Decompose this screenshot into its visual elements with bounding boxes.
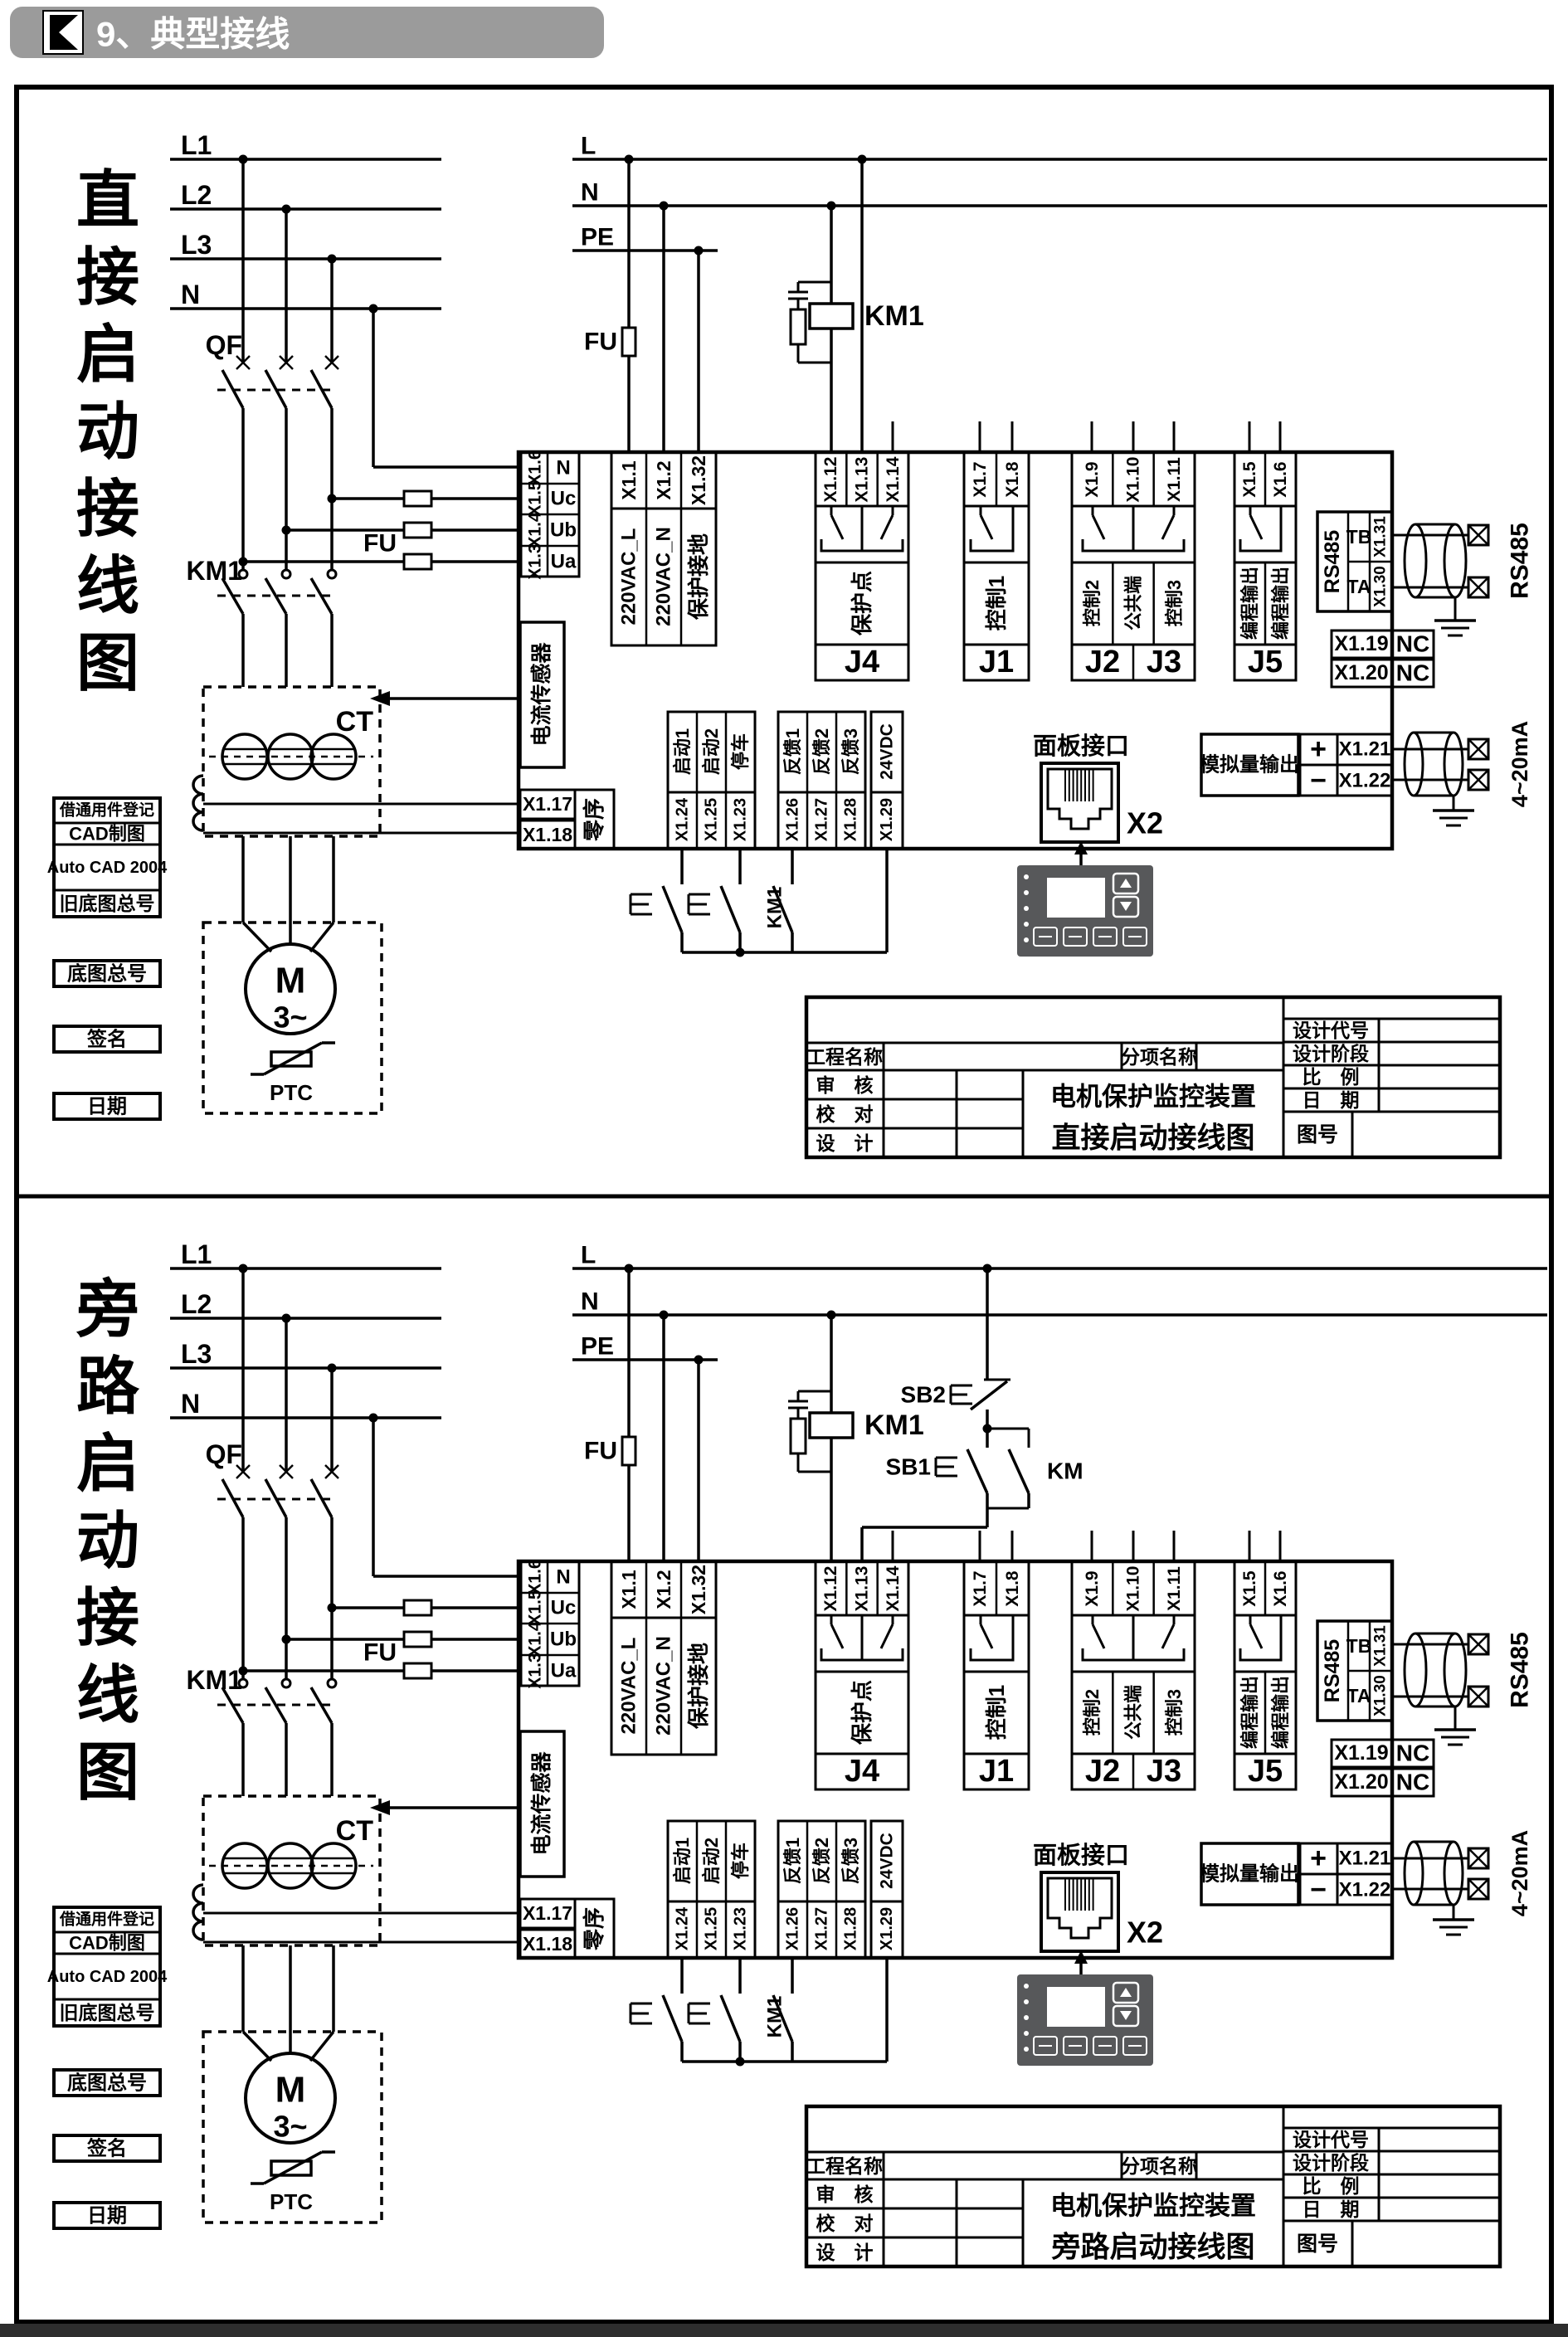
zero-seq-coil-icon	[193, 776, 203, 830]
breaker-label: QF	[206, 1439, 242, 1469]
relay-contact-icon	[971, 1629, 1013, 1660]
cable-shield	[1444, 1842, 1463, 1905]
text-label: NC	[1396, 1770, 1429, 1795]
box	[1234, 506, 1296, 562]
breaker-label: QF	[206, 330, 242, 360]
text-label: 图号	[1297, 2232, 1338, 2256]
motor-phase-label: 3~	[273, 2110, 307, 2144]
side-title-char: 线	[76, 552, 139, 622]
terminal-desc: Ua	[551, 1660, 577, 1682]
header-bar: 9、典型接线	[10, 7, 604, 58]
text-label: 日 期	[1303, 2198, 1360, 2220]
text-label: 签名	[86, 2137, 127, 2160]
keypad-led	[1024, 1999, 1029, 2004]
connector-name: X2	[1127, 806, 1163, 840]
connector-name: J5	[1248, 1754, 1283, 1789]
sensor-label: 电流传感器	[529, 1751, 553, 1856]
relay-contact-icon	[1133, 1629, 1184, 1660]
terminal-id: X1.21	[1339, 1848, 1391, 1870]
box	[964, 506, 1029, 562]
terminal-id: X1.17	[523, 1902, 572, 1924]
panel-port-label: 面板接口	[1033, 733, 1129, 760]
terminal-id: X1.3	[526, 543, 545, 579]
text-label: 日 期	[1303, 1089, 1360, 1111]
terminal-desc: 反馈2	[811, 1838, 832, 1884]
fuse-label: FU	[363, 530, 397, 557]
direct-start-diagram: 直接启动接线图L1L2L3NQFFUKM1CTM3~PTCLNPEFUKM1X1…	[47, 130, 1547, 1157]
text-label: 设计代号	[1293, 2129, 1369, 2150]
terminal-desc: 反馈1	[782, 1838, 803, 1884]
terminal-id: X1.26	[784, 1907, 802, 1950]
terminal-desc: Ub	[550, 519, 577, 542]
analog-ext-label: 4~20mA	[1507, 1830, 1532, 1916]
terminal-id: X1.21	[1339, 738, 1391, 761]
terminal-id: X1.28	[842, 1907, 860, 1950]
rj45-jack-icon	[1041, 763, 1118, 842]
terminal-desc: 保护点	[850, 1680, 874, 1745]
connector-name: J5	[1248, 645, 1283, 679]
fuse-icon	[622, 328, 635, 356]
device-title: 电机保护监控装置	[1050, 1083, 1256, 1112]
wire	[243, 2032, 271, 2061]
side-title-char: 动	[76, 397, 139, 468]
contactor-coil-icon	[810, 304, 853, 329]
terminal-desc: 24VDC	[878, 723, 897, 780]
terminal-id: X1.11	[1165, 1566, 1184, 1611]
terminal-id: X1.2	[653, 460, 674, 499]
text-label: 设计阶段	[1293, 2152, 1369, 2174]
relay-contact-icon	[971, 519, 1013, 551]
ptc-label: PTC	[270, 1080, 313, 1105]
rj45-inner	[1048, 769, 1112, 829]
terminal-desc: 控制1	[984, 576, 1009, 631]
terminal-id: X1.30	[1372, 566, 1390, 607]
wire	[1093, 515, 1104, 539]
zero-seq-coil-icon	[193, 1885, 203, 1940]
side-title-char: 直	[76, 166, 139, 236]
terminal-desc: 控制1	[984, 1685, 1009, 1740]
terminal-desc: 编程输出	[1239, 1676, 1260, 1749]
terminal-id: X1.31	[1372, 1625, 1390, 1667]
terminal-id: X1.4	[526, 512, 545, 548]
side-title-char: 图	[76, 629, 139, 699]
line-label: L	[581, 133, 596, 160]
terminal-desc: 停车	[730, 733, 751, 770]
analog-ext-label: 4~20mA	[1507, 721, 1532, 807]
terminal-desc: 控制2	[1082, 1689, 1103, 1736]
text-label: Auto CAD 2004	[47, 1968, 168, 1986]
terminal-id: X1.29	[878, 1907, 896, 1950]
cable-shield	[1405, 1842, 1423, 1905]
fuse-icon	[404, 491, 431, 506]
wire	[1009, 1449, 1029, 1493]
km-aux-label: KM1	[764, 887, 786, 929]
wire	[831, 1624, 843, 1648]
fuse-label: FU	[363, 1639, 397, 1667]
terminal-desc: Ua	[551, 551, 577, 573]
keypad-led	[1024, 906, 1029, 911]
fuse-icon	[404, 523, 431, 538]
wiring-diagram-canvas: 9、典型接线 直接启动接线图L1L2L3NQFFUKM1CTM3~PTCLNPE…	[0, 0, 1568, 2337]
connector-name: J2	[1085, 645, 1120, 679]
terminal-desc: 反馈1	[782, 728, 803, 775]
terminal-id: X1.26	[784, 798, 802, 841]
text-label: 旧底图总号	[60, 893, 155, 914]
rs485-ext-label: RS485	[1507, 1632, 1534, 1708]
text-label: NC	[1396, 660, 1429, 686]
footer-strip	[0, 2324, 1568, 2337]
terminal-id: X1.1	[618, 460, 640, 500]
side-title-char: 接	[76, 243, 139, 314]
terminal-id: X1.13	[853, 457, 872, 503]
panel-port-label: 面板接口	[1033, 1842, 1129, 1869]
terminal-id: X1.12	[821, 1566, 840, 1612]
terminal-id: X1.25	[703, 1907, 721, 1950]
text-label: 比 例	[1303, 2175, 1360, 2197]
text-label: Auto CAD 2004	[47, 859, 168, 877]
junction-dot	[736, 2057, 745, 2067]
cable-shield	[1405, 733, 1423, 796]
coil-label: KM1	[864, 1410, 924, 1441]
wire	[881, 1624, 893, 1648]
terminal-id: X1.28	[842, 798, 860, 841]
wire	[981, 515, 992, 539]
rs485-label: RS485	[1321, 530, 1344, 594]
text-label: 设 计	[816, 2242, 874, 2263]
text-label: 校 对	[816, 1103, 874, 1125]
stop-button-label: SB2	[901, 1382, 946, 1408]
keypad-led	[1024, 874, 1029, 879]
terminal-desc: 启动1	[672, 728, 693, 775]
terminal-desc: 启动1	[672, 1838, 693, 1884]
text-label: 日期	[87, 2205, 127, 2227]
text-label: 审 核	[816, 1074, 874, 1096]
terminal-desc: 反馈3	[840, 1838, 861, 1884]
cable-shield	[1444, 733, 1463, 796]
side-title-char: 接	[76, 1584, 139, 1654]
side-title-char: 动	[76, 1507, 139, 1577]
terminal-desc: 保护点	[850, 571, 874, 636]
fuse-label: FU	[584, 1438, 617, 1465]
terminal-desc: 24VDC	[878, 1833, 897, 1889]
resistor-icon	[791, 1419, 806, 1453]
terminal-id: X1.10	[1124, 457, 1143, 503]
wire	[1093, 1624, 1104, 1648]
terminal-desc: 公共端	[1123, 1685, 1144, 1740]
text-label: NC	[1396, 1741, 1429, 1766]
keypad-led	[1024, 2015, 1029, 2020]
text-label: 底图总号	[67, 2072, 147, 2095]
line-label: N	[581, 1288, 599, 1316]
coil-label: KM1	[864, 300, 924, 332]
km-aux-label: KM	[1047, 1458, 1083, 1484]
box	[1234, 1615, 1296, 1672]
text-label: 旧底图总号	[60, 2002, 155, 2023]
text-label: 底图总号	[67, 962, 147, 986]
text-label: 审 核	[816, 2184, 874, 2205]
phase-label: L2	[181, 1289, 212, 1319]
text-label: CAD制图	[69, 1933, 145, 1954]
side-title-char: 图	[76, 1738, 139, 1809]
terminal-id: X1.32	[688, 455, 709, 505]
terminal-id: X1.32	[688, 1565, 709, 1614]
terminal-id: X1.27	[813, 798, 831, 841]
text-label: 工程名称	[806, 1046, 883, 1068]
terminal-id: X1.8	[1003, 1570, 1022, 1607]
text-label: 图号	[1297, 1123, 1338, 1147]
terminal-desc: 保护接地	[686, 1643, 711, 1730]
wire	[1162, 515, 1174, 539]
text-label: 借通用件登记	[59, 1910, 154, 1929]
terminal-id: X1.5	[526, 480, 545, 517]
terminal-id: X1.24	[674, 797, 692, 841]
phase-label: L1	[181, 130, 212, 160]
terminal-id: X1.9	[1083, 461, 1102, 497]
text-label: 设 计	[816, 1132, 874, 1154]
rs485-label: RS485	[1321, 1639, 1344, 1703]
terminal-id: X1.5	[1240, 461, 1259, 498]
terminal-id: X1.5	[1240, 1570, 1259, 1607]
terminal-id: X1.11	[1165, 457, 1184, 502]
keypad-lcd	[1047, 1987, 1105, 2027]
terminal-id: X1.20	[1334, 1770, 1388, 1794]
phase-label: L3	[181, 1339, 212, 1369]
start-button-label: SB1	[886, 1454, 931, 1480]
drawing-title: 旁路启动接线图	[1050, 2231, 1254, 2264]
relay-contact-icon	[1083, 519, 1133, 551]
text-label: +	[1310, 1843, 1327, 1874]
wire	[721, 1995, 740, 2042]
terminal-id: X1.23	[732, 798, 750, 841]
terminal-id: X1.29	[878, 798, 896, 841]
relay-contact-icon	[1083, 1629, 1133, 1660]
resistor-icon	[791, 309, 806, 344]
terminal-id: X1.25	[703, 798, 721, 841]
keypad-led	[1024, 890, 1029, 895]
keypad-led	[1024, 2047, 1029, 2052]
km-aux-label: KM1	[764, 1996, 786, 2038]
text-label: −	[1310, 1874, 1327, 1906]
phase-label: N	[181, 1389, 200, 1419]
analog-label: 模拟量输出	[1200, 753, 1299, 777]
text-label: TA	[1347, 576, 1371, 597]
node	[328, 570, 336, 578]
fuse-icon	[404, 1600, 431, 1615]
terminal-id: X1.17	[523, 793, 572, 815]
terminal-desc: N	[556, 1566, 570, 1589]
text-label: 日期	[87, 1096, 127, 1118]
text-label: 设计阶段	[1293, 1043, 1369, 1064]
terminal-id: X1.13	[853, 1566, 872, 1612]
terminal-id: X1.19	[1334, 632, 1388, 655]
terminal-id: X1.2	[653, 1570, 674, 1609]
terminal-desc: 停车	[730, 1843, 751, 1879]
terminal-id: X1.12	[821, 457, 840, 503]
node	[282, 570, 290, 578]
wire	[1250, 1624, 1262, 1648]
side-title-char: 启	[76, 1429, 139, 1500]
text-label: 设计代号	[1293, 1020, 1369, 1041]
terminal-id: X1.8	[1003, 461, 1022, 498]
terminal-desc: 编程输出	[1270, 1676, 1291, 1749]
text-label: 借通用件登记	[59, 801, 154, 820]
rs485-ext-label: RS485	[1507, 523, 1534, 599]
wire	[967, 1449, 987, 1493]
terminal-desc: Ub	[550, 1629, 577, 1651]
connector-name: J2	[1085, 1754, 1120, 1789]
terminal-desc: 控制3	[1164, 580, 1185, 626]
text-label: 工程名称	[806, 2155, 883, 2177]
fuse-icon	[622, 1437, 635, 1465]
text-label: NC	[1396, 631, 1429, 657]
wire	[981, 1624, 992, 1648]
wire	[1250, 515, 1262, 539]
terminal-id: X1.22	[1339, 1879, 1391, 1901]
terminal-desc: 220VAC_N	[653, 1636, 675, 1736]
motor-label: M	[275, 2070, 306, 2111]
side-title-char: 启	[76, 320, 139, 391]
terminal-id: X1.18	[523, 824, 572, 845]
ct-label: CT	[336, 1815, 374, 1847]
text-label: 分项名称	[1121, 1046, 1197, 1068]
terminal-desc: 编程输出	[1239, 567, 1260, 640]
rj45-jack-icon	[1041, 1872, 1118, 1951]
terminal-id: X1.1	[618, 1570, 640, 1609]
line-label: PE	[581, 1333, 614, 1361]
terminal-id: X1.7	[971, 461, 990, 497]
terminal-desc: 启动2	[701, 728, 722, 775]
line-label: PE	[581, 224, 614, 251]
node	[282, 1679, 290, 1687]
wire	[881, 515, 893, 539]
connector-name: J3	[1147, 1754, 1181, 1789]
wire	[243, 923, 271, 952]
terminal-id: X1.6	[1271, 461, 1290, 497]
fuse-icon	[404, 1632, 431, 1647]
junction-dot	[736, 948, 745, 957]
keypad-lcd	[1047, 878, 1105, 918]
terminal-desc: Uc	[551, 488, 577, 510]
side-title-char: 路	[76, 1352, 140, 1423]
drawing-title: 直接启动接线图	[1051, 1122, 1254, 1155]
text-label: TB	[1346, 1635, 1372, 1657]
terminal-id: X1.23	[732, 1907, 750, 1950]
terminal-desc: 零序	[582, 1907, 606, 1950]
fuse-label: FU	[584, 329, 617, 356]
connector-name: X2	[1127, 1916, 1163, 1950]
side-title-char: 接	[76, 475, 139, 545]
keypad-led	[1024, 922, 1029, 927]
connector-name: J4	[845, 645, 879, 679]
terminal-desc: N	[556, 457, 570, 480]
relay-contact-icon	[1133, 519, 1184, 551]
text-label: −	[1310, 765, 1327, 796]
box	[964, 1615, 1029, 1672]
wire	[831, 515, 843, 539]
rj45-inner	[1048, 1878, 1112, 1938]
terminal-id: X1.30	[1372, 1675, 1390, 1716]
terminal-id: X1.6	[1271, 1570, 1290, 1606]
terminal-id: X1.6	[526, 450, 545, 485]
terminal-id: X1.5	[526, 1590, 545, 1626]
terminal-desc: 零序	[582, 798, 606, 841]
terminal-id: X1.4	[526, 1621, 545, 1658]
terminal-id: X1.7	[971, 1570, 990, 1606]
terminal-id: X1.27	[813, 1907, 831, 1950]
text-label: +	[1310, 733, 1327, 765]
text-label: TA	[1347, 1685, 1371, 1706]
terminal-id: X1.3	[526, 1653, 545, 1688]
connector-name: J4	[845, 1754, 879, 1789]
motor-phase-label: 3~	[273, 1001, 307, 1035]
line-label: N	[581, 179, 599, 207]
bypass-start-diagram: 旁路启动接线图L1L2L3NQFFUKM1CTM3~PTCLNPEFUKM1SB…	[47, 1239, 1547, 2266]
terminal-desc: 反馈2	[811, 728, 832, 775]
contactor-label: KM1	[186, 1665, 242, 1695]
keypad-led	[1024, 2031, 1029, 2036]
node	[328, 1679, 336, 1687]
page-title: 9、典型接线	[96, 15, 290, 54]
wire	[663, 886, 682, 932]
fuse-icon	[404, 1663, 431, 1678]
analog-label: 模拟量输出	[1200, 1862, 1299, 1886]
manual-page: 9、典型接线 直接启动接线图L1L2L3NQFFUKM1CTM3~PTCLNPE…	[0, 0, 1568, 2337]
terminal-desc: Uc	[551, 1597, 577, 1619]
device-title: 电机保护监控装置	[1050, 2192, 1256, 2221]
keypad-led	[1024, 937, 1029, 942]
terminal-id: X1.14	[884, 1565, 903, 1611]
connector-name: J3	[1147, 645, 1181, 679]
terminal-id: X1.9	[1083, 1570, 1102, 1606]
terminal-desc: 220VAC_L	[618, 528, 640, 626]
side-title-char: 旁	[75, 1275, 139, 1346]
wire	[1162, 1624, 1174, 1648]
terminal-desc: 公共端	[1123, 576, 1144, 631]
wire	[310, 2032, 334, 2061]
terminal-desc: 反馈3	[840, 728, 861, 775]
terminal-id: X1.18	[523, 1933, 572, 1955]
connector-name: J1	[979, 645, 1014, 679]
text-label: 签名	[86, 1028, 127, 1051]
keypad-led	[1024, 1984, 1029, 1989]
ct-label: CT	[336, 706, 374, 738]
terminal-id: X1.22	[1339, 770, 1391, 792]
wire	[663, 1995, 682, 2042]
text-label: 分项名称	[1121, 2155, 1197, 2177]
terminal-desc: 编程输出	[1270, 567, 1291, 640]
ptc-label: PTC	[270, 2189, 313, 2214]
side-title-char: 线	[76, 1661, 139, 1731]
node	[239, 1679, 247, 1687]
connector-name: J1	[979, 1754, 1014, 1789]
fuse-icon	[404, 554, 431, 569]
terminal-desc: 控制3	[1164, 1689, 1185, 1736]
terminal-desc: 保护接地	[686, 533, 711, 621]
text-label: CAD制图	[69, 824, 145, 845]
outer-border	[17, 87, 1551, 2322]
text-label: 校 对	[816, 2213, 874, 2234]
text-label: TB	[1346, 526, 1372, 548]
wire	[721, 886, 740, 932]
text-label: 比 例	[1303, 1066, 1360, 1088]
wire	[971, 1381, 1007, 1410]
terminal-id: X1.19	[1334, 1741, 1388, 1765]
terminal-id: X1.14	[884, 456, 903, 502]
line-label: L	[581, 1242, 596, 1269]
terminal-id: X1.24	[674, 1906, 692, 1950]
contactor-label: KM1	[186, 556, 242, 586]
wire	[310, 923, 334, 952]
